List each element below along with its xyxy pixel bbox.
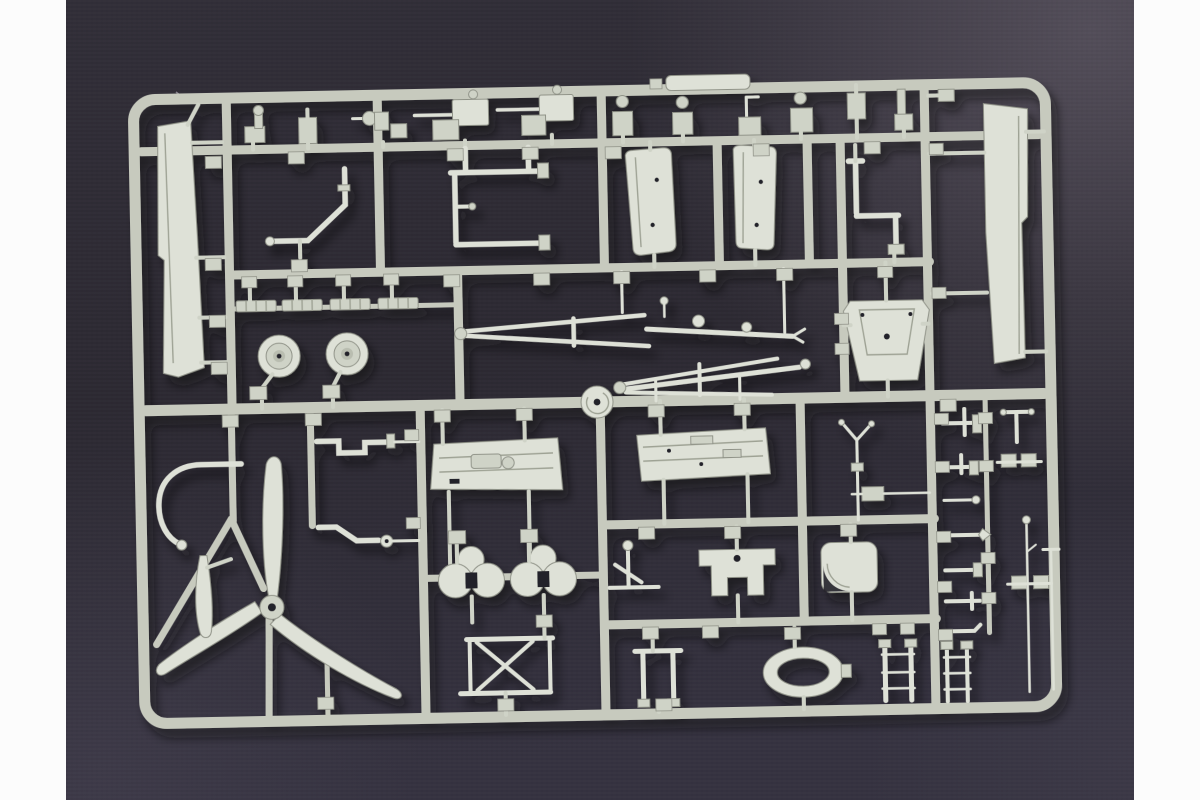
gear-door-right-part [733, 140, 778, 266]
gear-door-left-part [625, 142, 676, 268]
sprue-photo-canvas: Plastic model kit sprue of light grey in… [0, 0, 1200, 800]
letterbox-right [1134, 0, 1200, 800]
letterbox-left [0, 0, 66, 800]
gate-boss [581, 386, 614, 419]
model-kit-sprue-photo: Plastic model kit sprue of light grey in… [0, 0, 1200, 800]
